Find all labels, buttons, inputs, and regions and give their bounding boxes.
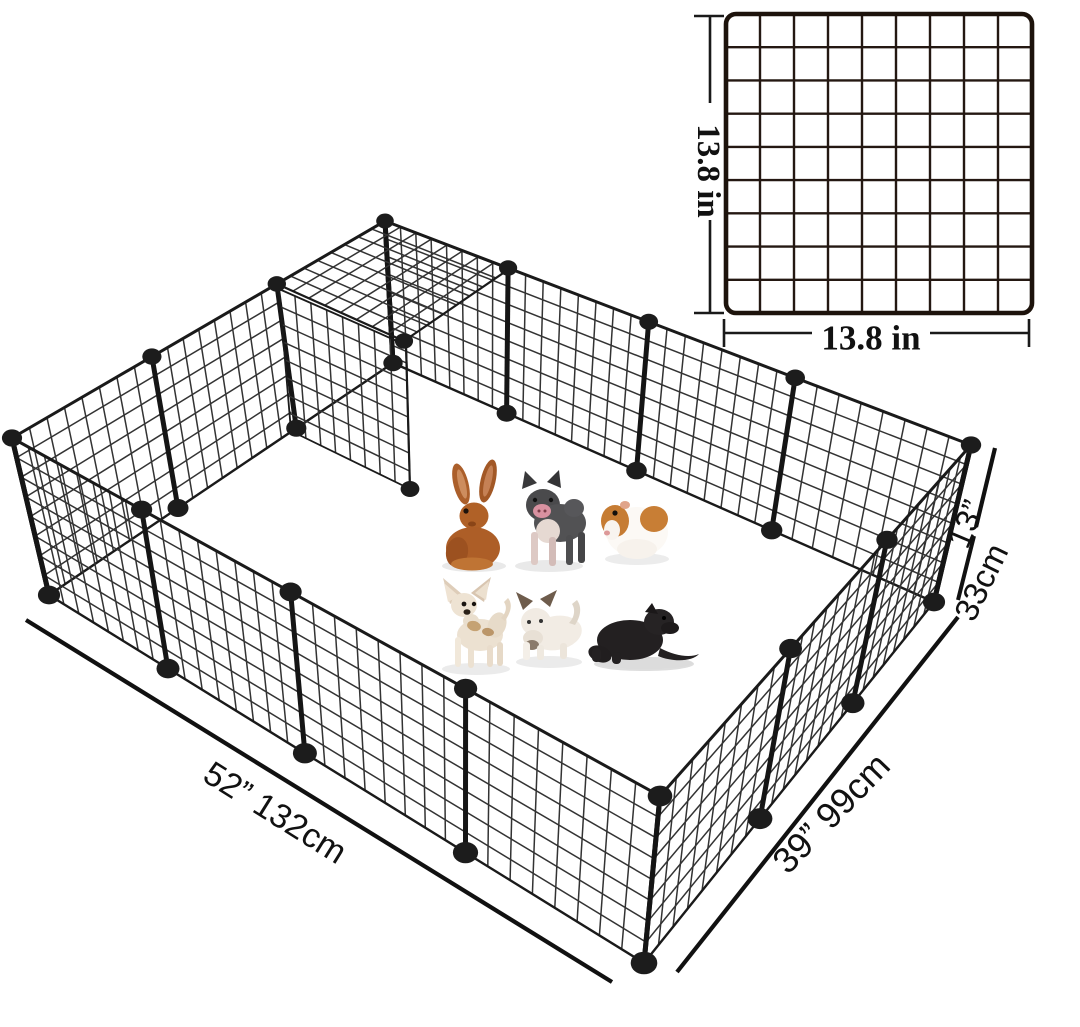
svg-text:13.8 in: 13.8 in (690, 124, 726, 218)
svg-text:13.8 in: 13.8 in (821, 319, 920, 358)
